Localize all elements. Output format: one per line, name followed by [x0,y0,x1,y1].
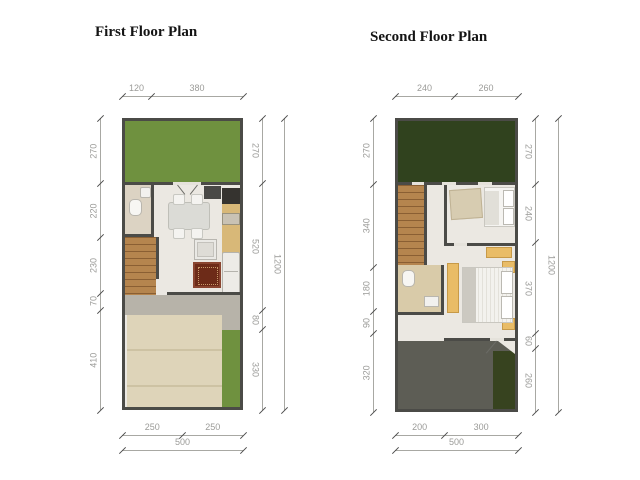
side-path [222,315,240,330]
wall-stairs-right [424,185,427,275]
dining-chair [173,228,185,239]
bathroom-sink [424,296,439,307]
first-plan-right-dimensions: 270 520 80 330 [250,118,266,410]
dim-segment: 240 [395,85,454,101]
dim-segment: 320 [361,334,377,412]
dim-tick [391,447,398,454]
dim-label: 260 [523,348,534,412]
carport-seam [127,349,222,351]
bedroom1-blanket [485,191,499,225]
dim-label: 1200 [272,118,283,410]
dim-label: 320 [361,334,372,412]
toilet [402,270,415,287]
terrace [125,295,240,315]
master-pillow [501,296,513,319]
dim-label: 240 [395,83,454,93]
floor-plan-sheet: First Floor Plan Second Floor Plan [0,0,640,480]
armchair-cushion [197,242,214,257]
second-plan-right-total-dimension: 1200 [546,118,562,412]
wall-living-terrace [167,292,240,295]
dim-segment: 260 [523,348,539,412]
dim-label: 250 [122,422,183,432]
dim-label: 270 [523,118,534,184]
sofa [222,252,240,294]
bedroom1-pillow [503,208,514,225]
first-plan-top-dimensions: 120 380 [122,85,243,101]
bedroom1-desk [449,188,483,220]
first-floor-plan-title: First Floor Plan [95,24,197,41]
carport [127,315,222,407]
dim-label: 300 [444,422,518,432]
dim-label: 240 [523,184,534,243]
dim-tick [118,447,125,454]
stairs [125,237,156,295]
dim-segment: 120 [122,85,151,101]
toilet [129,199,142,216]
dim-label: 180 [361,267,372,311]
second-plan-top-dimensions: 240 260 [395,85,518,101]
dining-chair [191,228,203,239]
rug-pattern [198,267,218,285]
dim-segment: 260 [454,85,518,101]
window-opening [478,182,492,185]
dim-label: 500 [122,437,243,447]
first-plan-right-total-dimension: 1200 [272,118,288,410]
dim-label: 270 [361,118,372,184]
dim-label: 380 [151,83,243,93]
dim-label: 520 [250,184,261,311]
dim-label: 370 [523,243,534,334]
wall-bedroom1-left [444,185,447,243]
bathroom-sink [140,187,151,198]
dim-segment: 330 [250,330,266,410]
dim-label: 250 [183,422,244,432]
carport-seam [127,385,222,387]
second-floor-plan [395,118,518,412]
dim-segment: 500 [122,439,243,455]
dim-segment: 520 [250,184,266,311]
master-dresser [486,247,512,258]
dim-label: 120 [122,83,151,93]
dim-label: 330 [250,330,261,410]
dim-segment: 1200 [272,118,288,410]
refrigerator [222,188,240,204]
dim-label: 1200 [546,118,557,412]
dim-label: 260 [454,83,518,93]
bedroom1-door-opening [454,243,467,246]
dim-segment: 380 [151,85,243,101]
dim-label: 220 [88,184,99,238]
dining-table [168,202,210,230]
sofa-cushion-line [224,271,238,272]
dim-label: 500 [395,437,518,447]
second-plan-right-dimensions: 270 240 370 60 260 [523,118,539,412]
dim-label: 410 [88,310,99,410]
second-plan-left-dimensions: 270 340 180 90 320 [361,118,377,412]
dim-segment: 410 [88,310,104,410]
dim-label: 230 [88,237,99,293]
second-plan-bottom-total-dimension: 500 [395,439,518,455]
wall-bathroom-right [151,185,154,234]
lower-roof-green-strip [493,351,515,409]
dim-segment: 500 [395,439,518,455]
first-plan-left-dimensions: 270 220 230 70 410 [88,118,104,410]
dim-label: 60 [523,334,534,349]
dim-segment: 220 [88,184,104,238]
garden [125,121,240,182]
dim-segment: 1200 [546,118,562,412]
dim-segment: 270 [523,118,539,184]
master-blanket [463,268,476,322]
first-floor-plan [122,118,243,410]
dim-segment: 270 [361,118,377,184]
roof-garden [398,121,515,182]
dim-label: 200 [395,422,444,432]
side-garden-strip [222,330,240,407]
dining-chair [173,194,185,205]
first-plan-bottom-total-dimension: 500 [122,439,243,455]
master-wardrobe [447,263,459,313]
dim-segment: 340 [361,184,377,267]
dim-label: 270 [88,118,99,184]
dim-label: 90 [361,312,372,334]
kitchen-cabinet [204,186,221,199]
dim-segment: 370 [523,243,539,334]
dim-segment: 270 [88,118,104,184]
dim-segment: 180 [361,267,377,311]
stove [222,213,240,225]
wall-bathroom-right [441,265,444,312]
dim-segment: 230 [88,237,104,293]
master-pillow [501,271,513,294]
bedroom1-pillow [503,190,514,207]
dim-tick [391,93,398,100]
dim-label: 270 [250,118,261,184]
dining-chair [191,194,203,205]
second-floor-plan-title: Second Floor Plan [370,29,487,46]
dim-label: 80 [250,310,261,329]
dim-segment: 270 [250,118,266,184]
dim-label: 70 [88,293,99,310]
stairs [398,185,424,275]
dim-tick [118,93,125,100]
wall-bathroom-bottom [398,312,444,315]
dim-label: 340 [361,184,372,267]
dim-segment: 240 [523,184,539,243]
wall-stairs-right [156,237,159,279]
